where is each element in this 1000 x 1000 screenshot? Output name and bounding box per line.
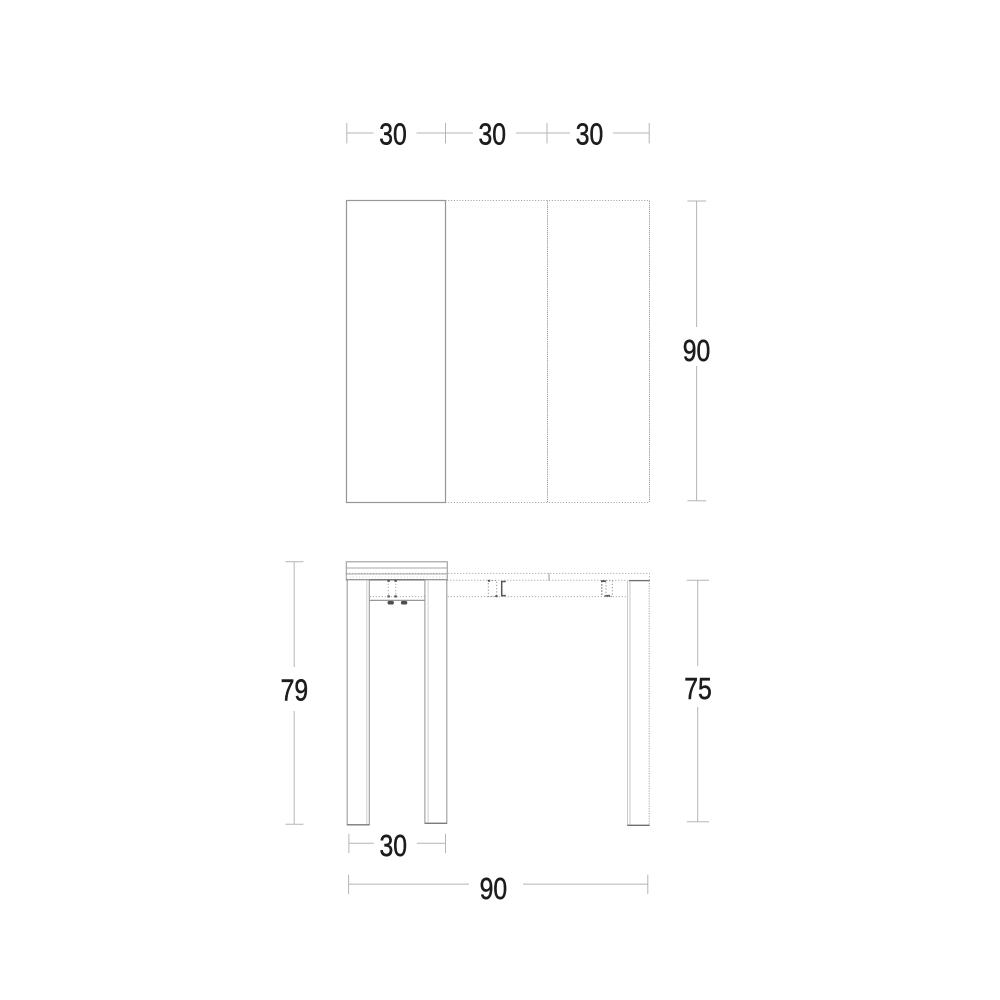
svg-text:30: 30 <box>479 116 507 151</box>
svg-text:90: 90 <box>480 871 508 906</box>
svg-text:90: 90 <box>683 333 711 368</box>
svg-text:75: 75 <box>684 671 712 706</box>
svg-text:79: 79 <box>281 673 309 708</box>
svg-text:30: 30 <box>379 116 407 151</box>
svg-text:30: 30 <box>380 828 408 863</box>
svg-text:30: 30 <box>576 116 604 151</box>
